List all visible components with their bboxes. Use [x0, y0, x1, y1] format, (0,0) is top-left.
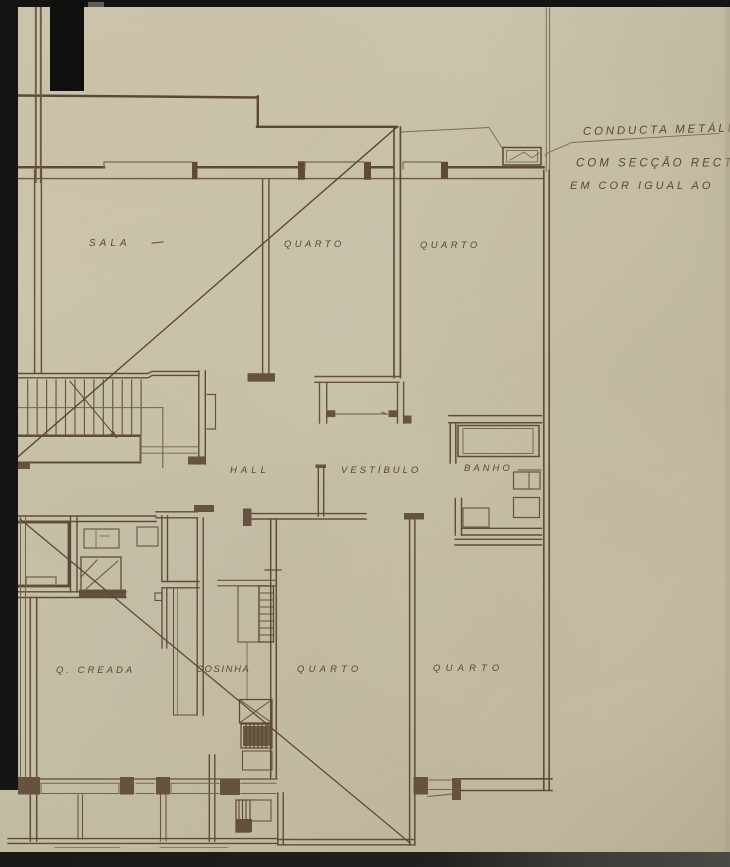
svg-text:Q. CREADA: Q. CREADA — [56, 665, 135, 676]
svg-text:QUARTO: QUARTO — [297, 664, 363, 675]
svg-text:COM SECÇÃO RECT: COM SECÇÃO RECT — [576, 157, 730, 170]
svg-text:EM COR IGUAL AO: EM COR IGUAL AO — [570, 180, 713, 192]
svg-text:COSINHA: COSINHA — [196, 664, 250, 675]
svg-text:QUARTO: QUARTO — [433, 663, 505, 674]
svg-text:BANHO: BANHO — [464, 463, 513, 474]
svg-text:QUARTO: QUARTO — [420, 240, 481, 251]
svg-text:VESTÍBULO: VESTÍBULO — [341, 465, 421, 476]
svg-text:HALL: HALL — [230, 465, 270, 476]
svg-text:SALA: SALA — [89, 238, 131, 249]
svg-text:QUARTO: QUARTO — [284, 239, 345, 250]
